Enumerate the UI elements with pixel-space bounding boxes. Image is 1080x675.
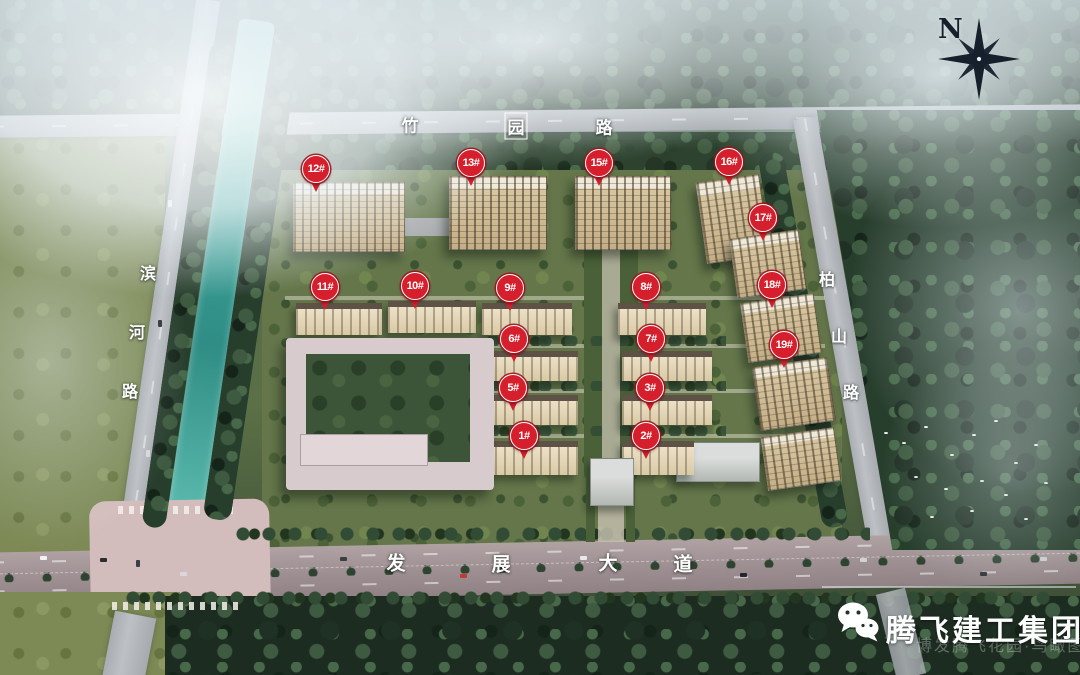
building-3 — [622, 395, 712, 425]
building-8 — [618, 303, 706, 335]
avenue-traffic — [40, 556, 47, 560]
building-19 — [752, 357, 836, 431]
building-6 — [486, 351, 578, 381]
birds-flock — [884, 432, 888, 434]
company-logo-text: 腾飞建工集团 — [886, 606, 1080, 650]
building-5 — [486, 395, 578, 425]
central-axis-path — [602, 232, 620, 478]
compass-star-icon — [938, 18, 1020, 100]
compound-south-wing — [300, 434, 428, 466]
building-10 — [388, 301, 476, 333]
avenue-north-trees — [230, 526, 870, 542]
avenue-south-trees — [120, 590, 1060, 606]
building-12 — [293, 182, 405, 252]
compass-rose: N — [938, 16, 1028, 132]
building-13 — [449, 176, 547, 250]
building-11 — [296, 303, 382, 335]
building-17 — [729, 229, 807, 298]
brand-divider — [822, 586, 1076, 588]
binhe-traffic — [168, 200, 172, 207]
building-9 — [482, 303, 572, 335]
entrance-gate-building — [590, 458, 634, 506]
courtyard-compound — [286, 338, 494, 490]
north-forest — [0, 0, 1080, 116]
building-15 — [575, 176, 671, 250]
building-southeast-tower — [761, 427, 842, 491]
wechat-icon — [834, 598, 882, 646]
crosswalk-south — [112, 602, 244, 610]
building-18 — [740, 293, 822, 363]
aerial-masterplan: N 竹园路滨河路柏山路发展大道 12#13#15#16#17#11#10#9#8… — [0, 0, 1080, 675]
building-7 — [622, 351, 712, 381]
building-1 — [486, 441, 578, 475]
